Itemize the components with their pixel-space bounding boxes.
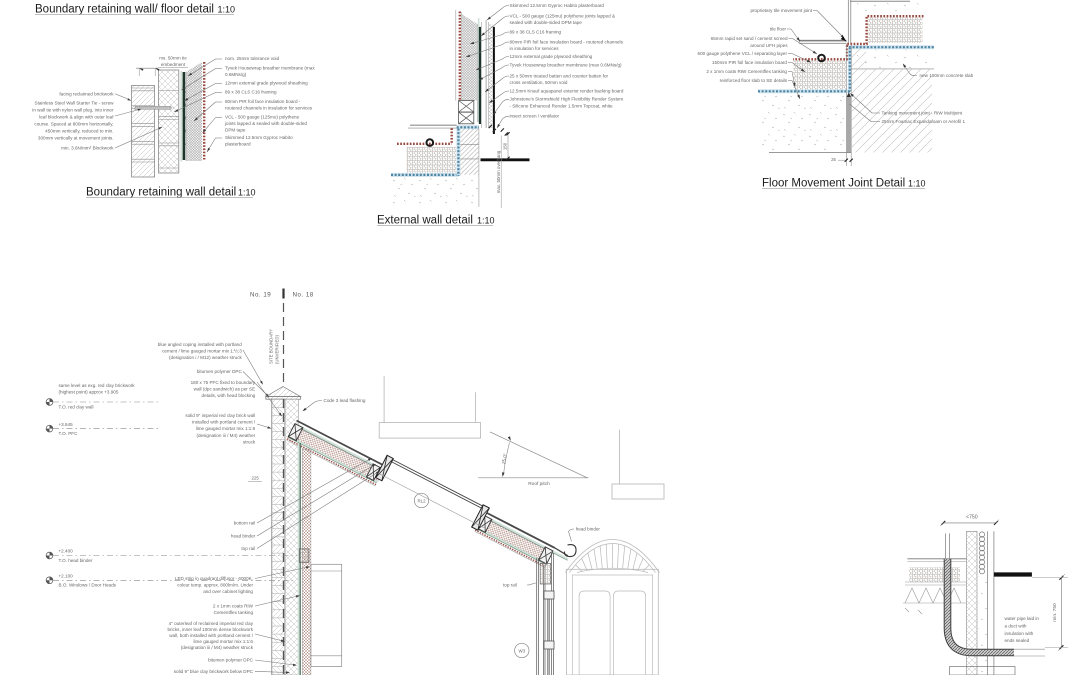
svg-text:Boundary retaining wall/ floor: Boundary retaining wall/ floor detail <box>35 3 214 15</box>
svg-text:Tyvek Housewrap breather membr: Tyvek Housewrap breather membrane (max <box>225 66 315 71</box>
svg-text:(designation i / M12) weather: (designation i / M12) weather struck <box>169 355 242 360</box>
svg-text:<750: <750 <box>966 515 978 521</box>
svg-text:top rail: top rail <box>241 546 255 551</box>
svg-text:joints lapped & sealed with do: joints lapped & sealed with double-sided <box>224 121 307 126</box>
svg-text:80mm PIR foil face insulation: 80mm PIR foil face insulation board - <box>225 99 301 104</box>
svg-text:Skimmed 12.5mm Gyproc Habito: Skimmed 12.5mm Gyproc Habito <box>225 135 293 140</box>
svg-text:around UFH pipes: around UFH pipes <box>750 43 788 48</box>
svg-text:2 x 1mm coats RIW: 2 x 1mm coats RIW <box>213 604 254 609</box>
svg-text:cement / lime gauged mortar mi: cement / lime gauged mortar mix 1:½:3 <box>162 348 242 354</box>
svg-text:(highest point) approx +3.905: (highest point) approx +3.905 <box>59 389 119 394</box>
svg-text:lime gauged mortar mix 1:1:6: lime gauged mortar mix 1:1:6 <box>194 639 254 644</box>
svg-text:facing reclaimed brickwork: facing reclaimed brickwork <box>59 91 114 96</box>
svg-text:1:10: 1:10 <box>218 4 236 14</box>
svg-text:+2.100: +2.100 <box>59 574 74 579</box>
svg-text:bricks, inner leaf 100mm dense: bricks, inner leaf 100mm dense blockwork <box>167 627 253 632</box>
svg-text:4" outerleaf of reclaimed impe: 4" outerleaf of reclaimed imperial red c… <box>169 621 254 626</box>
svg-text:insulation with: insulation with <box>1005 631 1034 636</box>
svg-text:150mm PIR foil face insulation: 150mm PIR foil face insulation board <box>712 60 788 65</box>
svg-text:course. Spaced at 800mm horizo: course. Spaced at 800mm horizontally, <box>34 122 113 127</box>
svg-text:top rail: top rail <box>503 583 517 588</box>
svg-text:lime gauged mortar mix 1:1:6: lime gauged mortar mix 1:1:6 <box>196 426 256 431</box>
svg-text:1:10: 1:10 <box>238 187 256 197</box>
svg-text:plasterboard: plasterboard <box>225 142 251 147</box>
svg-text:a duct with: a duct with <box>1005 623 1027 628</box>
svg-text:1:10: 1:10 <box>908 178 926 188</box>
svg-text:same level as exg. red clay br: same level as exg. red clay brickwork <box>59 383 136 388</box>
svg-text:in insulation for services: in insulation for services <box>510 46 560 51</box>
svg-text:sealed with double-sided DPM t: sealed with double-sided DPM tape <box>510 20 583 25</box>
svg-text:1:10: 1:10 <box>477 215 495 225</box>
svg-text:VCL - 500 gauge (125mu) polyth: VCL - 500 gauge (125mu) polythene <box>225 115 300 120</box>
svg-text:struck: struck <box>243 439 256 444</box>
svg-text:+3.645: +3.645 <box>59 422 74 427</box>
svg-text:new 100mm concrete slab: new 100mm concrete slab <box>920 73 974 78</box>
svg-text:450mm vertically, reduced to m: 450mm vertically, reduced to min. <box>45 129 113 134</box>
svg-text:Boundary retaining wall detail: Boundary retaining wall detail <box>86 186 236 198</box>
svg-text:12.5mm Knauf aquapanel exterio: 12.5mm Knauf aquapanel exterior render b… <box>510 88 624 93</box>
svg-text:solid 9" blue clay brickwork b: solid 9" blue clay brickwork below DPC <box>174 669 254 674</box>
svg-text:DPM tape: DPM tape <box>225 127 246 132</box>
svg-text:details, with head blocking: details, with head blocking <box>202 393 256 398</box>
svg-text:tile floor: tile floor <box>770 26 787 31</box>
svg-text:225: 225 <box>252 476 260 481</box>
svg-text:ends sealed: ends sealed <box>1005 638 1030 643</box>
svg-text:solid 9" imperial red clay bri: solid 9" imperial red clay brick wall <box>185 413 255 418</box>
svg-text:80mm PIR foil face insulation: 80mm PIR foil face insulation board - ro… <box>510 39 624 44</box>
svg-text:25 x 50mm treated batten and c: 25 x 50mm treated batten and counter bat… <box>510 73 609 78</box>
svg-text:(designation iii / M4) weather: (designation iii / M4) weather <box>196 433 255 438</box>
svg-text:bitumen polymer DPC: bitumen polymer DPC <box>208 658 254 663</box>
svg-text:180 x 75 PFC fixed to boundary: 180 x 75 PFC fixed to boundary <box>191 380 256 385</box>
svg-text:0.6MNs/g): 0.6MNs/g) <box>225 72 247 77</box>
svg-text:12mm external grade plywood sh: 12mm external grade plywood sheathing <box>225 81 308 86</box>
svg-text:150: 150 <box>503 142 508 150</box>
svg-text:B.O. Windows / Door Heads: B.O. Windows / Door Heads <box>59 583 117 588</box>
svg-text:Floor Movement Joint Detail: Floor Movement Joint Detail <box>762 177 905 189</box>
svg-text:Code 3 lead flashing: Code 3 lead flashing <box>324 398 366 403</box>
svg-text:head binder: head binder <box>231 533 256 538</box>
svg-text:in wall tie with nylon wall pl: in wall tie with nylon wall plug, into i… <box>32 108 114 113</box>
svg-text:VCL - 500 gauge (125mu) polyth: VCL - 500 gauge (125mu) polythene joints… <box>510 13 616 18</box>
svg-text:(UNVERIFIED): (UNVERIFIED) <box>275 335 280 364</box>
svg-text:500 gauge polythene VCL / sepa: 500 gauge polythene VCL / separating lay… <box>698 51 788 56</box>
svg-text:External wall detail: External wall detail <box>377 214 473 226</box>
svg-text:(designation iii / M4) weather: (designation iii / M4) weather struck <box>181 645 254 650</box>
svg-text:89 x 38 CLS C16 framing: 89 x 38 CLS C16 framing <box>510 29 562 34</box>
svg-text:ms. 50mm tie: ms. 50mm tie <box>159 56 187 61</box>
svg-text:89 x 38 CLS C16 framing: 89 x 38 CLS C16 framing <box>225 90 277 95</box>
svg-text:Tanking movement joint - RIW M: Tanking movement joint - RIW Multijoint <box>882 110 963 115</box>
svg-text:max. 50mm overhang: max. 50mm overhang <box>496 150 501 193</box>
svg-text:wall (dpc sandwich) as per SE: wall (dpc sandwich) as per SE <box>194 387 256 392</box>
svg-text:Skimmed 12.5mm Gyproc Habito p: Skimmed 12.5mm Gyproc Habito plasterboar… <box>510 3 605 8</box>
svg-text:leaf blockwork & align with ou: leaf blockwork & align with outer leaf <box>39 115 114 120</box>
svg-text:bottom rail: bottom rail <box>234 521 255 526</box>
svg-text:25: 25 <box>831 157 836 162</box>
svg-text:and over cabinet lighting: and over cabinet lighting <box>203 589 253 594</box>
svg-text:head binder: head binder <box>576 527 601 532</box>
svg-text:blue angled coping installed w: blue angled coping installed with portla… <box>158 342 242 347</box>
svg-text:insect screen / ventilator: insect screen / ventilator <box>510 114 560 119</box>
svg-text:T.O. red clay wall: T.O. red clay wall <box>59 404 94 409</box>
svg-text:No. 19: No. 19 <box>250 292 271 299</box>
svg-text:Stainless Steel Wall Starter T: Stainless Steel Wall Starter Tie - screw <box>35 101 115 106</box>
svg-text:Roof pitch: Roof pitch <box>528 481 550 487</box>
svg-text:routered channels in insulatio: routered channels in insulation for serv… <box>225 106 313 111</box>
svg-text:LED strip in quadrant diffusor: LED strip in quadrant diffusor - 6000K, <box>175 576 253 581</box>
svg-text:bitumen polymer DPC: bitumen polymer DPC <box>197 369 243 374</box>
svg-text:12mm external grade plywood sh: 12mm external grade plywood sheathing <box>510 54 593 59</box>
svg-text:proprietary tile movement join: proprietary tile movement joint <box>750 8 812 13</box>
svg-text:water pipe laid in: water pipe laid in <box>1005 616 1040 621</box>
svg-text:SITE BOUNDARY: SITE BOUNDARY <box>269 329 274 364</box>
svg-text:min. 3.6N/mm² Blockwork: min. 3.6N/mm² Blockwork <box>61 146 114 151</box>
svg-text:300mm vertically at movement j: 300mm vertically at movement joints. <box>38 136 114 141</box>
svg-text:colour temp. approx. 800lm/m.: colour temp. approx. 800lm/m. Under <box>177 583 253 588</box>
svg-text:25mm Foamac Expandafoam or Aer: 25mm Foamac Expandafoam or Aerofil 1 <box>882 119 966 124</box>
svg-text:Johnstone's Stormshield High F: Johnstone's Stormshield High Flexibility… <box>510 97 624 102</box>
svg-text:+2.400: +2.400 <box>59 549 74 554</box>
svg-text:W3: W3 <box>519 649 526 654</box>
svg-text:cross ventilation, 50mm void: cross ventilation, 50mm void <box>510 80 568 85</box>
svg-text:wall, both installed with port: wall, both installed with portland cemen… <box>169 633 253 638</box>
svg-text:T.O. PFC: T.O. PFC <box>59 431 79 436</box>
svg-text:No. 18: No. 18 <box>293 292 314 299</box>
svg-text:2 x 1mm coats RIW Cementflex t: 2 x 1mm coats RIW Cementflex tanking <box>706 69 787 74</box>
svg-text:Cementflex tanking: Cementflex tanking <box>214 610 254 615</box>
svg-text:Tyvek Housewrap breather membr: Tyvek Housewrap breather membrane (max 0… <box>510 62 623 67</box>
svg-text:T.O. head binder: T.O. head binder <box>59 558 93 563</box>
svg-text:embedment: embedment <box>161 62 186 67</box>
svg-text:nom. 25mm tolerance void: nom. 25mm tolerance void <box>225 56 280 61</box>
svg-text:- Silicone Enhanced Render 1.: - Silicone Enhanced Render 1.5mm Topcoat… <box>510 103 614 108</box>
svg-text:installed with portland cement: installed with portland cement / <box>192 420 256 425</box>
svg-text:65mm rapid set sand / cement s: 65mm rapid set sand / cement screed <box>711 36 788 41</box>
svg-text:reinforced floor slab to SE de: reinforced floor slab to SE details <box>720 78 788 83</box>
svg-text:RL2: RL2 <box>417 499 426 504</box>
svg-text:min. 750: min. 750 <box>1052 603 1058 622</box>
